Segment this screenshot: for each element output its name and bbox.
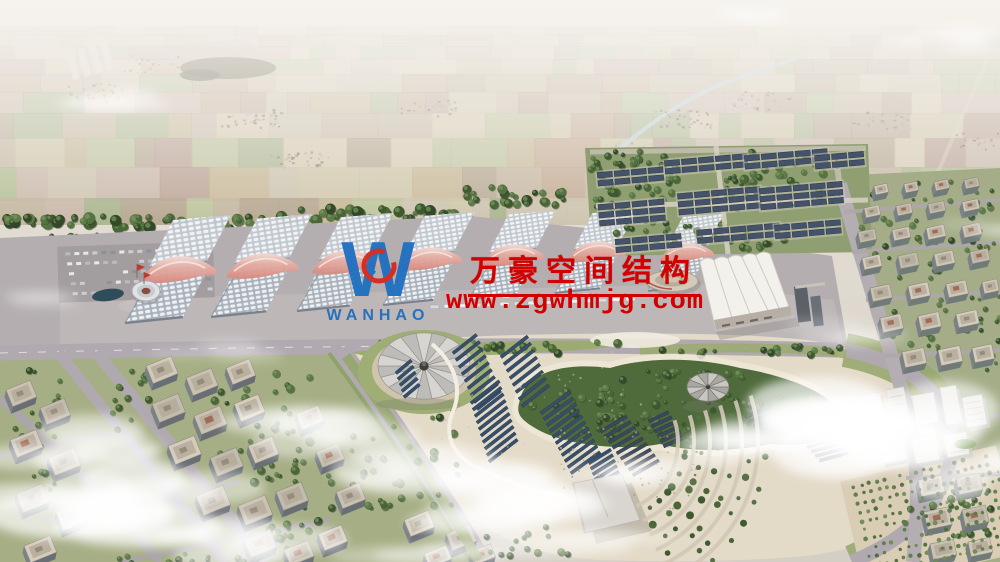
rendering-canvas: W WANHAO 万豪空间结构 www.zgwhmjg.com <box>0 0 1000 562</box>
oval-pavilion <box>646 271 701 296</box>
rendering-scene <box>0 0 1000 562</box>
